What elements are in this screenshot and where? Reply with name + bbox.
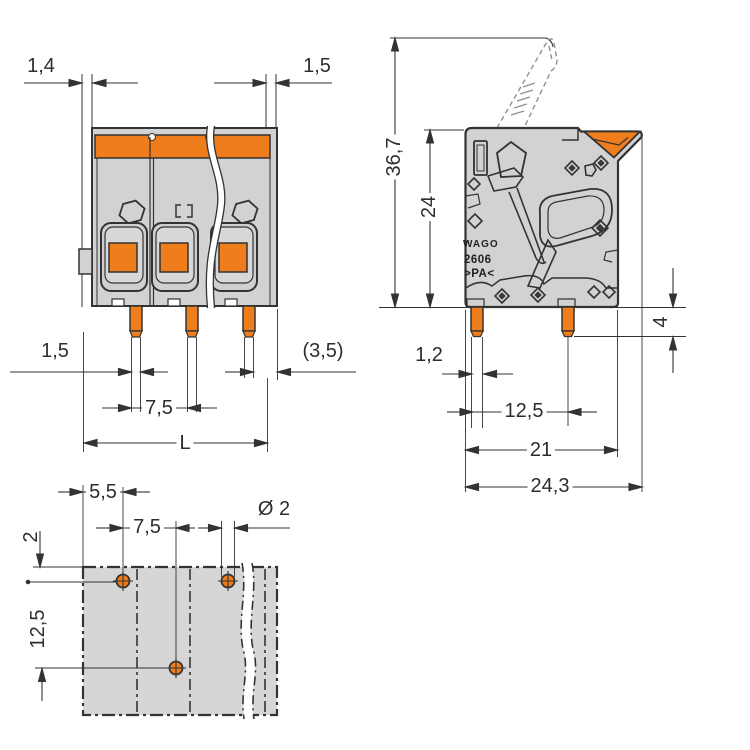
material-marking: >PA<: [464, 269, 495, 281]
brand-logo-text: WAGO: [463, 240, 499, 250]
dim-side-depth: [466, 310, 618, 457]
dim-label-footprint-row-spacing: 12,5: [28, 610, 48, 649]
wire-entry: [160, 243, 188, 272]
dim-front-wall-right: [214, 74, 332, 134]
dim-footprint-hole-diameter: [198, 525, 290, 532]
dim-label-footprint-edge-to-hole: 5,5: [86, 481, 120, 503]
dim-label-front-wall-left: 1,4: [27, 56, 55, 76]
side-body: [466, 128, 642, 337]
technical-drawing-page: 1,4 1,5 1,5 (3,5) 7,5 L 36,7 24 4 1,2 12…: [0, 0, 750, 750]
lever-open-dashed: [497, 39, 557, 128]
drawing-canvas: [0, 0, 750, 750]
dim-label-side-body-height: 24: [418, 193, 440, 221]
series-marking: 2606: [464, 255, 492, 267]
dim-label-side-total-depth: 24,3: [528, 475, 573, 497]
dim-front-pin-width: [10, 369, 168, 376]
front-view: [10, 74, 356, 452]
side-view: [379, 38, 686, 492]
dim-label-footprint-row-offset: 2: [21, 531, 41, 542]
solder-pin: [130, 306, 142, 337]
solder-pin: [186, 306, 198, 337]
dim-label-front-pitch: 7,5: [142, 397, 176, 419]
dim-label-side-depth: 21: [527, 439, 555, 461]
clamp-unit: [101, 223, 147, 291]
dim-label-front-wall-right: 1,5: [303, 56, 331, 76]
front-body: [79, 126, 277, 337]
dim-label-side-pin-length: 4: [651, 316, 671, 327]
dim-label-front-pin-width: 1,5: [41, 341, 69, 361]
dim-label-front-pin-to-edge: (3,5): [302, 341, 343, 361]
solder-pin: [243, 306, 255, 337]
wire-entry: [109, 243, 137, 272]
wire-entry: [219, 243, 247, 272]
dim-footprint-row-spacing: [39, 669, 46, 702]
side-latch: [79, 249, 92, 274]
dim-label-front-overall-length: L: [176, 432, 193, 454]
dim-side-pin-width: [442, 371, 513, 378]
dim-label-footprint-hole-diameter: Ø 2: [258, 499, 290, 519]
dim-label-side-pin-width: 1,2: [415, 345, 443, 365]
front-orange-strip: [95, 135, 270, 158]
dim-label-footprint-pitch: 7,5: [130, 516, 164, 538]
clamp-unit: [152, 223, 198, 291]
dim-label-side-total-height: 36,7: [383, 135, 405, 180]
dim-label-side-pin-spacing: 12,5: [502, 400, 547, 422]
